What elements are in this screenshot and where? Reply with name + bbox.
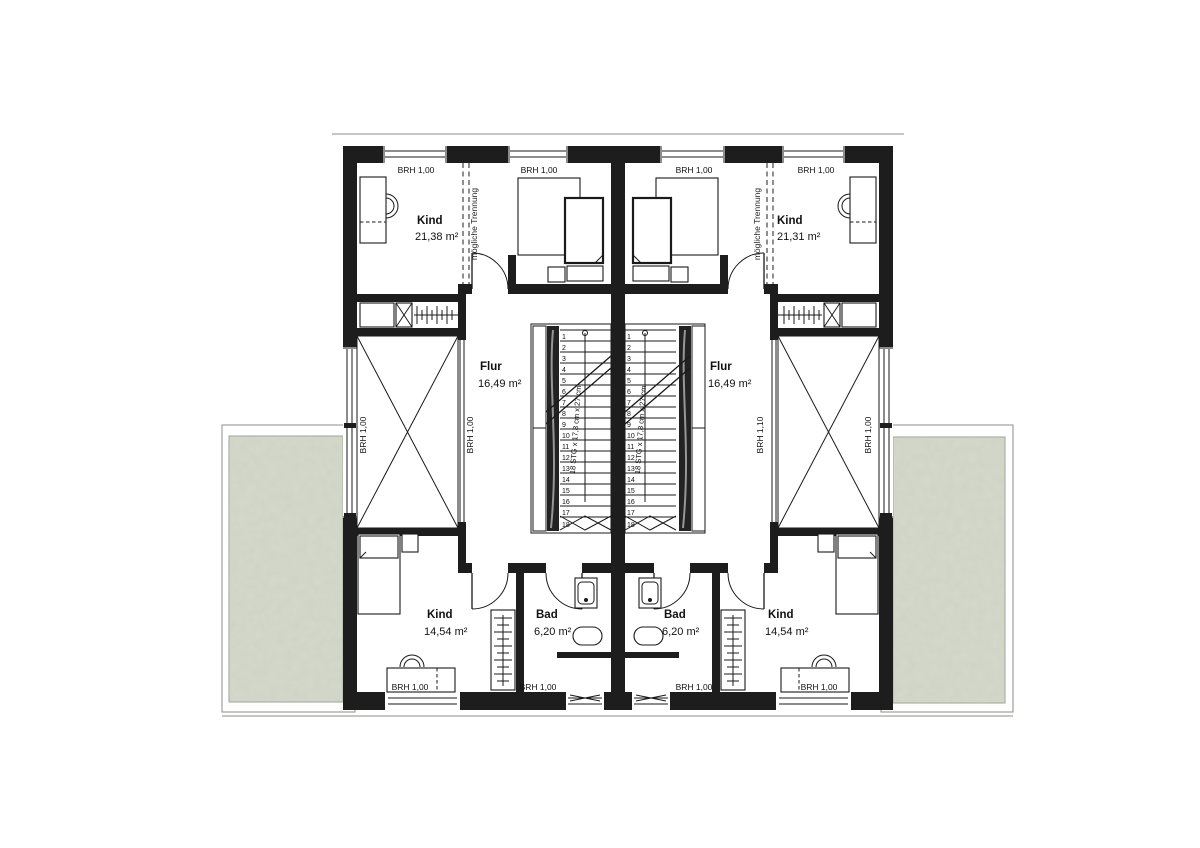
wall-segment bbox=[712, 563, 720, 692]
step-number: 17 bbox=[627, 510, 635, 517]
desk bbox=[850, 177, 876, 243]
step-number: 7 bbox=[562, 400, 566, 407]
step-number: 5 bbox=[562, 378, 566, 385]
wall-segment bbox=[460, 692, 566, 710]
wall-segment bbox=[516, 563, 524, 692]
balustrade-tick bbox=[344, 423, 356, 428]
brh-label-side-left: BRH 1,00 bbox=[358, 416, 368, 453]
wall-segment bbox=[770, 284, 778, 340]
wall-segment bbox=[764, 563, 778, 573]
step-number: 1 bbox=[562, 334, 566, 341]
brh-label: BRH 1,00 bbox=[798, 165, 835, 175]
balustrade-tick bbox=[880, 423, 892, 428]
step-number: 14 bbox=[562, 477, 570, 484]
step-number: 15 bbox=[627, 488, 635, 495]
wall-segment bbox=[508, 284, 611, 294]
nightstand bbox=[548, 267, 565, 282]
step-number: 6 bbox=[627, 389, 631, 396]
wardrobe-bottom-right bbox=[721, 610, 745, 690]
step-number: 2 bbox=[562, 345, 566, 352]
pillow bbox=[838, 536, 876, 558]
wall-segment bbox=[625, 284, 728, 294]
brh-label: BRH 1,00 bbox=[398, 165, 435, 175]
step-number: 10 bbox=[627, 433, 635, 440]
wall-segment bbox=[690, 563, 728, 573]
bed bbox=[565, 198, 603, 263]
step-number: 11 bbox=[562, 444, 569, 451]
balustrade-tick bbox=[344, 513, 356, 518]
step-number: 13 bbox=[627, 466, 635, 473]
room-area-kind-bottom-left: 14,54 m² bbox=[424, 626, 468, 638]
brh-label: BRH 1,00 bbox=[676, 165, 713, 175]
room-label-kind-bottom-left: Kind bbox=[427, 609, 453, 621]
party-wall bbox=[611, 146, 625, 708]
brh-label: BRH 1,00 bbox=[801, 682, 838, 692]
bed bbox=[633, 198, 671, 263]
step-number: 18 bbox=[562, 522, 570, 529]
wall-segment bbox=[458, 563, 472, 573]
room-label-kind-top-right: Kind bbox=[777, 215, 803, 227]
desk bbox=[360, 177, 386, 243]
wall-segment bbox=[625, 652, 679, 658]
window-side-left bbox=[343, 347, 357, 518]
sideboard bbox=[360, 303, 394, 327]
wall-segment bbox=[776, 328, 879, 336]
terrace-left bbox=[222, 425, 355, 712]
step-number: 1 bbox=[627, 334, 631, 341]
room-area-bad-right: 6,20 m² bbox=[662, 626, 700, 638]
brh-label: BRH 1,00 bbox=[521, 165, 558, 175]
room-area-kind-bottom-right: 14,54 m² bbox=[765, 626, 809, 638]
toilet bbox=[573, 627, 602, 645]
room-label-bad-left: Bad bbox=[536, 609, 558, 621]
room-area-kind-top-right: 21,31 m² bbox=[777, 231, 821, 243]
step-number: 14 bbox=[627, 477, 635, 484]
wall-segment bbox=[776, 294, 879, 302]
bed-bench bbox=[567, 266, 603, 281]
room-label-flur-right: Flur bbox=[710, 361, 732, 373]
step-number: 8 bbox=[627, 411, 631, 418]
step-number: 2 bbox=[627, 345, 631, 352]
step-number: 9 bbox=[627, 422, 631, 429]
floor-plan-svg: Kind 21,38 m² Kind 21,31 m² Flur 16,49 m… bbox=[0, 0, 1200, 848]
step-number: 7 bbox=[627, 400, 631, 407]
window-bottom-1 bbox=[385, 692, 460, 710]
step-number: 13 bbox=[562, 466, 570, 473]
pillow bbox=[360, 536, 398, 558]
step-number: 15 bbox=[562, 488, 570, 495]
wall-segment bbox=[343, 146, 357, 347]
wall-segment bbox=[582, 563, 611, 573]
room-label-kind-top-left: Kind bbox=[417, 215, 443, 227]
nightstand bbox=[402, 534, 418, 552]
brh-label-void-left: BRH 1,00 bbox=[465, 416, 475, 453]
wall-segment bbox=[625, 563, 654, 573]
sideboard bbox=[842, 303, 876, 327]
wall-segment bbox=[357, 328, 460, 336]
wall-segment bbox=[557, 652, 611, 658]
separation-note-right: mögliche Trennung bbox=[752, 188, 762, 261]
step-number: 6 bbox=[562, 389, 566, 396]
window-top-3 bbox=[660, 146, 725, 163]
separation-note-left: mögliche Trennung bbox=[469, 188, 479, 261]
wall-segment bbox=[357, 294, 460, 302]
wall-segment bbox=[725, 146, 782, 163]
wall-segment bbox=[447, 146, 508, 163]
wall-segment bbox=[508, 563, 546, 573]
drain bbox=[648, 598, 652, 602]
step-number: 5 bbox=[627, 378, 631, 385]
brh-label: BRH 1,00 bbox=[392, 682, 429, 692]
window-top-2 bbox=[508, 146, 568, 163]
brh-label: BRH 1,00 bbox=[676, 682, 713, 692]
wall-segment bbox=[879, 518, 893, 708]
step-number: 18 bbox=[627, 522, 635, 529]
wall-segment bbox=[670, 692, 776, 710]
room-area-kind-top-left: 21,38 m² bbox=[415, 231, 459, 243]
brh-label: BRH 1,00 bbox=[520, 682, 557, 692]
floor-plan-page: Kind 21,38 m² Kind 21,31 m² Flur 16,49 m… bbox=[0, 0, 1200, 848]
window-top-4 bbox=[782, 146, 845, 163]
room-area-flur-right: 16,49 m² bbox=[708, 378, 752, 390]
step-number: 8 bbox=[562, 411, 566, 418]
nightstand bbox=[818, 534, 834, 552]
terrace-left-texture bbox=[229, 436, 343, 702]
bed-bench bbox=[633, 266, 669, 281]
brh-label-void-right: BRH 1,10 bbox=[755, 416, 765, 453]
room-label-flur-left: Flur bbox=[480, 361, 502, 373]
wall-segment bbox=[458, 284, 466, 340]
toilet bbox=[634, 627, 663, 645]
wardrobe-bottom-left bbox=[491, 610, 515, 690]
room-label-bad-right: Bad bbox=[664, 609, 686, 621]
window-bottom-4 bbox=[776, 692, 851, 710]
room-area-flur-left: 16,49 m² bbox=[478, 378, 522, 390]
void-glazing-right bbox=[770, 340, 778, 522]
step-number: 16 bbox=[627, 499, 635, 506]
step-number: 11 bbox=[627, 444, 634, 451]
window-bottom-2 bbox=[566, 692, 604, 710]
wall-segment bbox=[879, 146, 893, 347]
door-jamb-stub bbox=[508, 255, 516, 284]
terrace-right bbox=[881, 425, 1013, 712]
window-bottom-3 bbox=[632, 692, 670, 710]
step-number: 16 bbox=[562, 499, 570, 506]
step-number: 12 bbox=[562, 455, 570, 462]
door-jamb-stub bbox=[720, 255, 728, 284]
step-number: 3 bbox=[562, 356, 566, 363]
balustrade-tick bbox=[880, 513, 892, 518]
step-number: 4 bbox=[562, 367, 566, 374]
brh-label-side-right: BRH 1,00 bbox=[863, 416, 873, 453]
room-label-kind-bottom-right: Kind bbox=[768, 609, 794, 621]
step-number: 12 bbox=[627, 455, 635, 462]
drain bbox=[584, 598, 588, 602]
step-number: 10 bbox=[562, 433, 570, 440]
window-top-1 bbox=[383, 146, 447, 163]
step-number: 4 bbox=[627, 367, 631, 374]
room-area-bad-left: 6,20 m² bbox=[534, 626, 572, 638]
step-number: 9 bbox=[562, 422, 566, 429]
window-side-right bbox=[879, 347, 893, 518]
step-number: 3 bbox=[627, 356, 631, 363]
step-number: 17 bbox=[562, 510, 570, 517]
wall-segment bbox=[343, 518, 357, 708]
terrace-right-texture bbox=[893, 437, 1005, 703]
nightstand bbox=[671, 267, 688, 282]
